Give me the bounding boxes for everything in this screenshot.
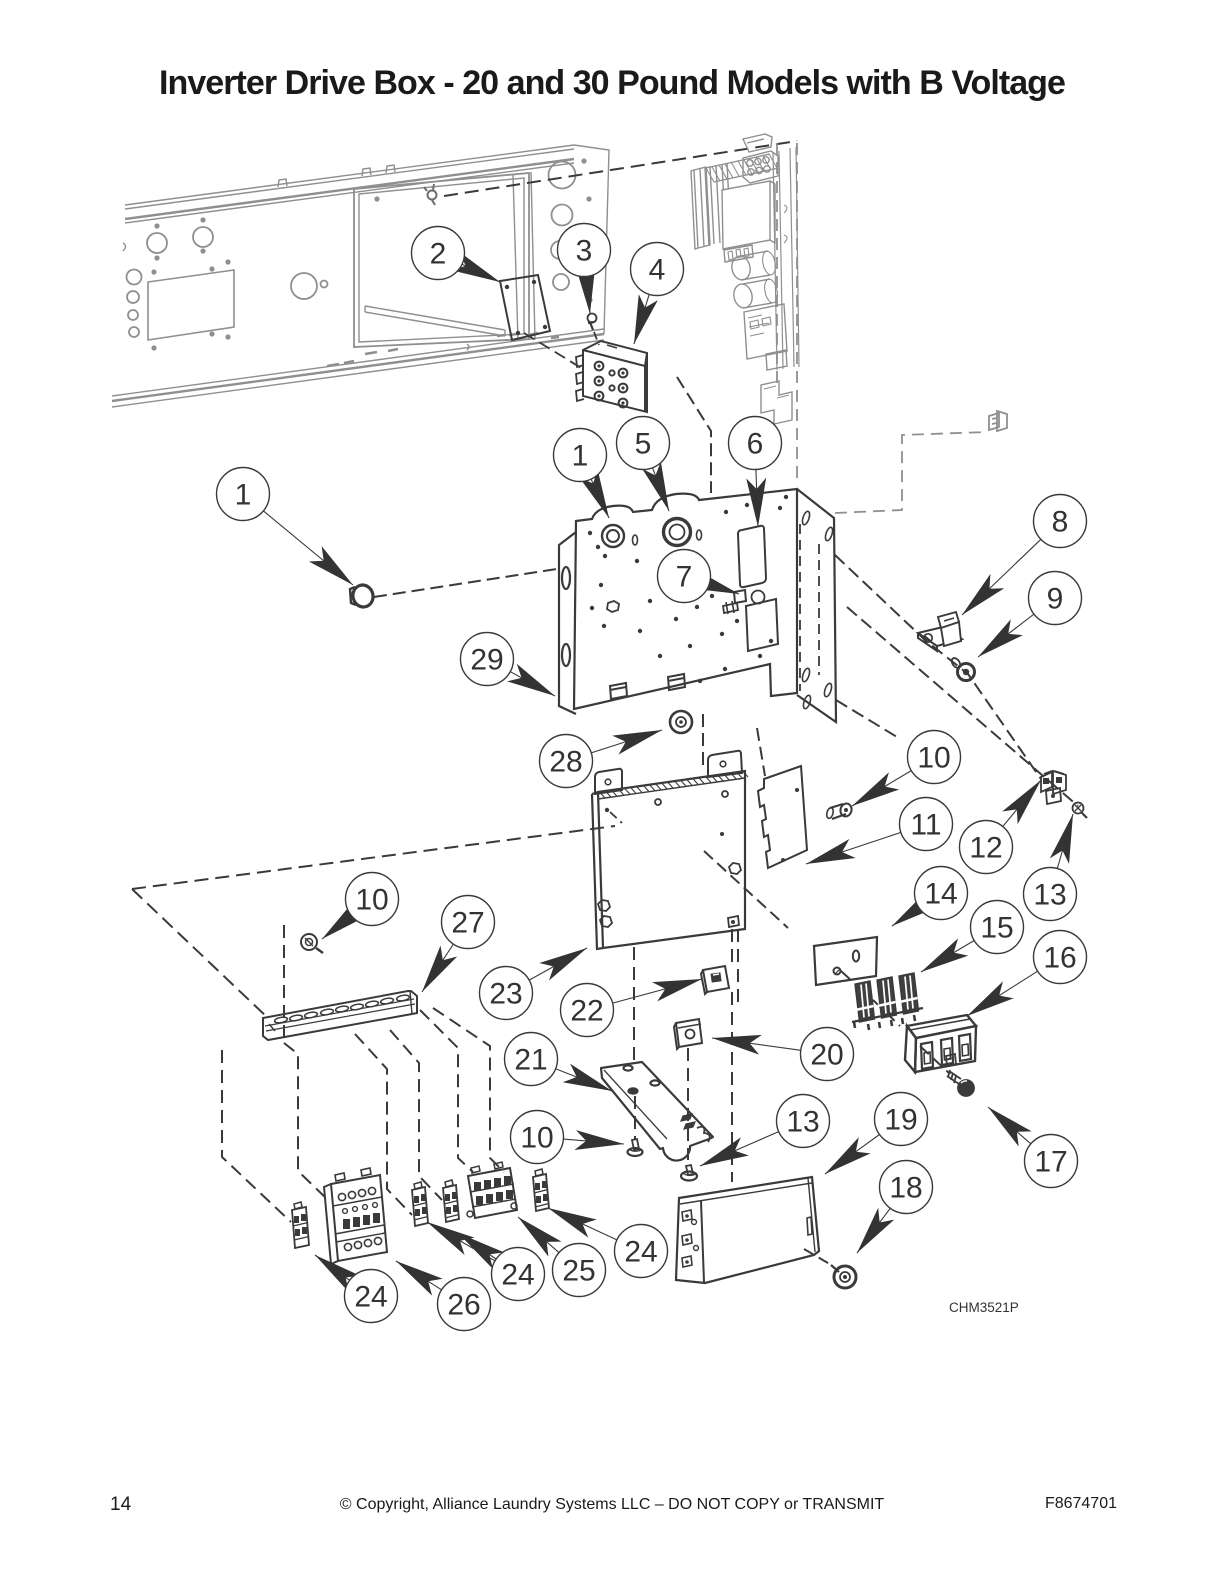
svg-text:3: 3 <box>576 235 593 268</box>
svg-text:29: 29 <box>470 644 503 677</box>
svg-text:17: 17 <box>1034 1146 1067 1179</box>
svg-text:14: 14 <box>924 878 957 911</box>
svg-text:26: 26 <box>447 1289 480 1322</box>
svg-text:F8674701: F8674701 <box>1045 1495 1117 1512</box>
svg-text:23: 23 <box>489 978 522 1011</box>
svg-text:21: 21 <box>514 1044 547 1077</box>
svg-text:7: 7 <box>676 561 693 594</box>
svg-text:2: 2 <box>430 238 447 271</box>
svg-text:24: 24 <box>354 1281 387 1314</box>
svg-text:19: 19 <box>884 1104 917 1137</box>
svg-text:6: 6 <box>747 428 764 461</box>
svg-text:20: 20 <box>810 1039 843 1072</box>
svg-text:12: 12 <box>969 832 1002 865</box>
svg-text:8: 8 <box>1052 506 1069 539</box>
svg-text:10: 10 <box>355 884 388 917</box>
svg-text:CHM3521P: CHM3521P <box>949 1300 1019 1315</box>
svg-text:11: 11 <box>910 809 941 842</box>
svg-text:16: 16 <box>1043 942 1076 975</box>
svg-text:© Copyright, Alliance Laundry: © Copyright, Alliance Laundry Systems LL… <box>340 1496 885 1513</box>
svg-text:1: 1 <box>572 440 589 473</box>
svg-text:4: 4 <box>649 254 666 287</box>
svg-text:27: 27 <box>451 907 484 940</box>
svg-text:Inverter Drive Box - 20 and 30: Inverter Drive Box - 20 and 30 Pound Mod… <box>159 64 1065 102</box>
svg-text:10: 10 <box>520 1122 553 1155</box>
svg-text:22: 22 <box>570 995 603 1028</box>
svg-text:13: 13 <box>786 1106 819 1139</box>
svg-text:18: 18 <box>889 1172 922 1205</box>
svg-text:24: 24 <box>624 1236 657 1269</box>
svg-text:24: 24 <box>501 1259 534 1292</box>
svg-text:25: 25 <box>562 1255 595 1288</box>
svg-text:28: 28 <box>549 746 582 779</box>
svg-text:10: 10 <box>917 742 950 775</box>
svg-text:1: 1 <box>235 479 252 512</box>
svg-text:15: 15 <box>980 912 1013 945</box>
svg-text:5: 5 <box>635 428 652 461</box>
svg-text:14: 14 <box>110 1494 132 1515</box>
svg-text:13: 13 <box>1033 879 1066 912</box>
svg-text:9: 9 <box>1047 583 1064 616</box>
